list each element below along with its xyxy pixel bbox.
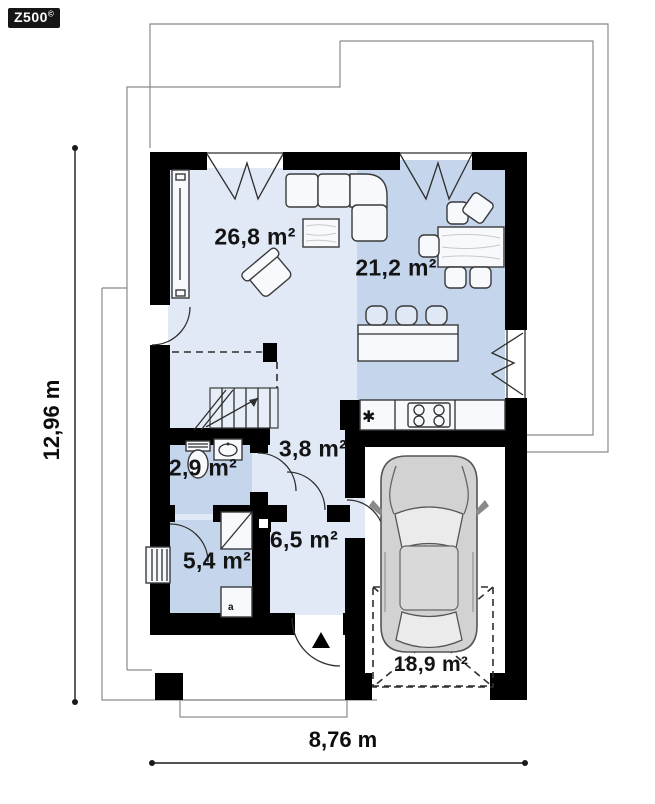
sink-star-icon: ✱ [362,409,375,426]
room-label-wc: 2,9 m² [169,455,237,482]
dimension-line-height [72,145,78,705]
floor-plan-drawing: ✱ a [0,0,655,804]
room-label-living: 26,8 m² [214,224,295,251]
entrance-step [180,700,347,717]
floor-plan-canvas: ✱ a [0,0,655,804]
room-label-garage: 18,9 m² [394,653,468,677]
dimension-width-label: 8,76 m [309,727,378,753]
car-rear-window [396,612,462,648]
kitchen-counter: ✱ [360,400,505,430]
porch-column [155,673,183,700]
brand-logo-mark: © [48,9,54,18]
entrance-arrow-icon [312,632,330,648]
utility-window [146,547,170,583]
coffee-table [303,219,339,247]
brand-logo-text: Z500 [14,9,48,25]
car [369,456,489,652]
column [263,343,277,362]
kitchen-island [358,325,458,361]
bar-stools [366,306,447,325]
car-roof [400,546,458,610]
dimension-height-label: 12,96 m [39,380,65,461]
boiler: a [221,587,252,617]
room-label-utility: 5,4 m² [183,548,251,575]
washing-machine [221,512,252,549]
boiler-mark: a [228,602,234,613]
room-label-kitchen-dining: 21,2 m² [355,255,436,282]
dining-table [438,227,504,267]
room-label-hallway: 3,8 m² [279,436,347,463]
brand-logo: Z500© [8,8,60,28]
tv-board [172,170,189,298]
car-windshield [395,507,463,548]
room-label-entry: 6,5 m² [270,527,338,554]
cooktop [408,403,450,427]
dimension-line-width [149,760,528,766]
electrical-box [256,514,271,532]
